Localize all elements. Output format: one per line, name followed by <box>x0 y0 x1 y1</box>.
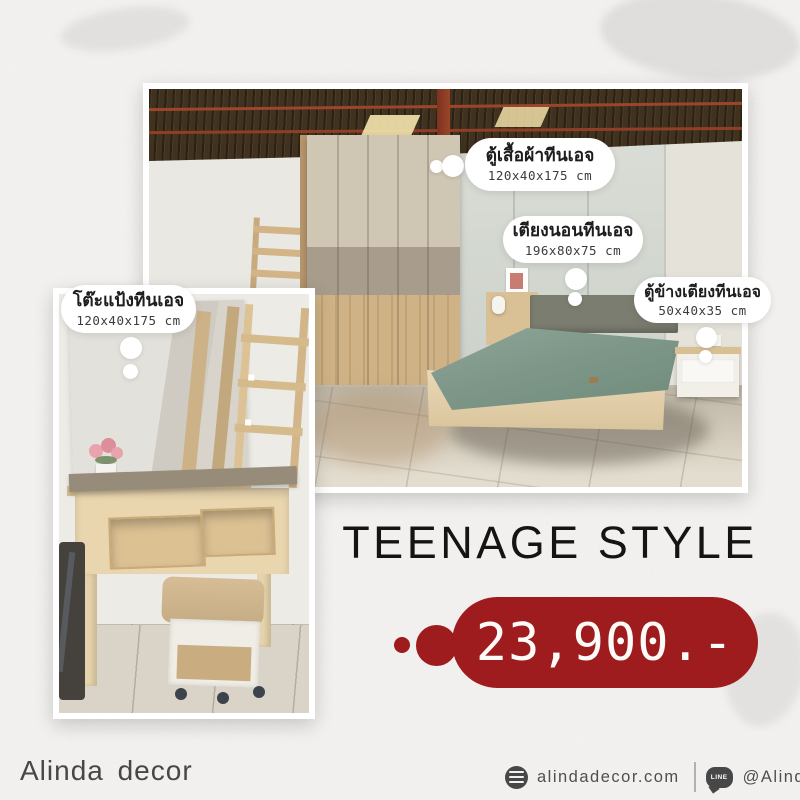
wardrobe <box>307 135 460 390</box>
callout-dimensions: 120x40x175 cm <box>488 168 592 183</box>
callout-dimensions: 120x40x175 cm <box>76 313 180 328</box>
skylight <box>495 107 550 127</box>
caster <box>217 692 229 704</box>
callout-title: ตู้ข้างเตียงทีนเอจ <box>644 282 761 301</box>
caster <box>175 688 187 700</box>
callout-bed: เตียงนอนทีนเอจ 196x80x75 cm <box>503 216 643 263</box>
callout-dressing-table: โต๊ะแป้งทีนเอจ 120x40x175 cm <box>61 285 196 333</box>
ladder-shelf <box>231 304 309 488</box>
price-bubble-dot <box>394 637 410 653</box>
leader-dot <box>120 337 142 359</box>
door-seam <box>337 135 339 390</box>
door-seam <box>367 135 369 390</box>
corner-smudge-top-left <box>58 0 193 59</box>
mattress-tag <box>589 377 598 383</box>
leader-dot <box>442 155 464 177</box>
nightstand-drawer <box>681 359 735 383</box>
footer-contacts: alindadecor.com LINE @Alindadecor <box>505 761 800 793</box>
leader-dot <box>699 350 712 363</box>
caster <box>253 686 265 698</box>
plastic-sheen <box>59 552 75 672</box>
leader-dot <box>568 292 582 306</box>
callout-title: เตียงนอนทีนเอจ <box>513 221 634 242</box>
callout-title: ตู้เสื้อผ้าทีนเอจ <box>486 146 595 167</box>
shelf-rail <box>289 308 309 488</box>
wardrobe-upper-doors <box>307 135 460 247</box>
promo-poster: ตู้เสื้อผ้าทีนเอจ 120x40x175 cm เตียงนอน… <box>0 0 800 800</box>
poster-title: TEENAGE STYLE <box>340 517 760 569</box>
stool-shelf <box>176 645 251 682</box>
wardrobe-mid-doors <box>307 247 460 295</box>
line-id: @Alindadecor <box>743 768 800 787</box>
leaf <box>95 456 117 464</box>
website-icon <box>505 766 528 789</box>
callout-dimensions: 196x80x75 cm <box>525 243 621 258</box>
mirror-reflection-shelf <box>181 311 211 482</box>
callout-dimensions: 50x40x35 cm <box>658 303 746 318</box>
wall-lamp <box>492 296 505 314</box>
wardrobe-reflection <box>309 391 449 466</box>
leader-dot <box>565 268 587 290</box>
open-drawer <box>200 507 276 558</box>
website-url: alindadecor.com <box>537 768 680 787</box>
callout-wardrobe: ตู้เสื้อผ้าทีนเอจ 120x40x175 cm <box>465 138 615 191</box>
wrapped-furniture <box>59 542 85 700</box>
line-messenger-icon: LINE <box>706 767 733 788</box>
price-bubble-dot <box>416 625 457 666</box>
line-icon-label: LINE <box>711 774 728 781</box>
brand-logo: Alinda decor <box>20 755 193 787</box>
callout-title: โต๊ะแป้งทีนเอจ <box>73 291 184 312</box>
leader-dot <box>696 327 717 348</box>
corner-smudge-top-right <box>596 0 800 89</box>
vanity-photo <box>53 288 315 719</box>
leader-dot <box>123 364 138 379</box>
door-seam <box>427 135 429 390</box>
open-drawer <box>108 514 206 569</box>
door-seam <box>397 135 399 390</box>
stool <box>159 578 267 706</box>
price-pill: 23,900.- <box>452 597 758 688</box>
footer-divider <box>694 762 696 792</box>
price-text: 23,900.- <box>476 613 734 673</box>
spec-card-print <box>510 273 523 289</box>
callout-bedside-cabinet: ตู้ข้างเตียงทีนเอจ 50x40x35 cm <box>634 277 771 323</box>
shelf-bracket <box>245 419 251 425</box>
shelf-bracket <box>248 374 254 380</box>
